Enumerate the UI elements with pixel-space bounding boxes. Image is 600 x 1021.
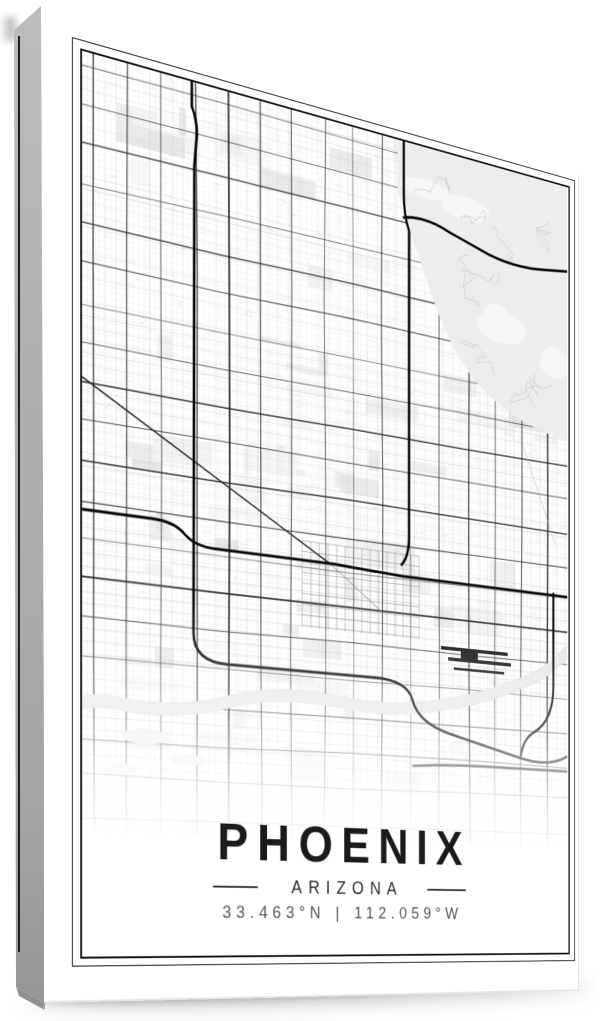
state-row: ARIZONA [79,875,569,901]
title-divider-left [213,886,258,889]
canvas-print-mockup: PHOENIX ARIZONA 33.463°N | 112.059°W [0,0,600,1021]
canvas-wrap-print-line [18,36,20,952]
poster-caption: PHOENIX ARIZONA 33.463°N | 112.059°W [79,809,569,923]
title-divider-right [428,889,467,891]
longitude-value: 112.059°W [354,904,462,923]
state-label: ARIZONA [285,878,403,898]
coordinate-separator: | [336,904,344,923]
canvas-front-face: PHOENIX ARIZONA 33.463°N | 112.059°W [44,22,579,1003]
canvas-side-edge [14,6,45,1003]
latitude-value: 33.463°N [222,903,325,923]
coordinates-label: 33.463°N | 112.059°W [79,902,569,923]
